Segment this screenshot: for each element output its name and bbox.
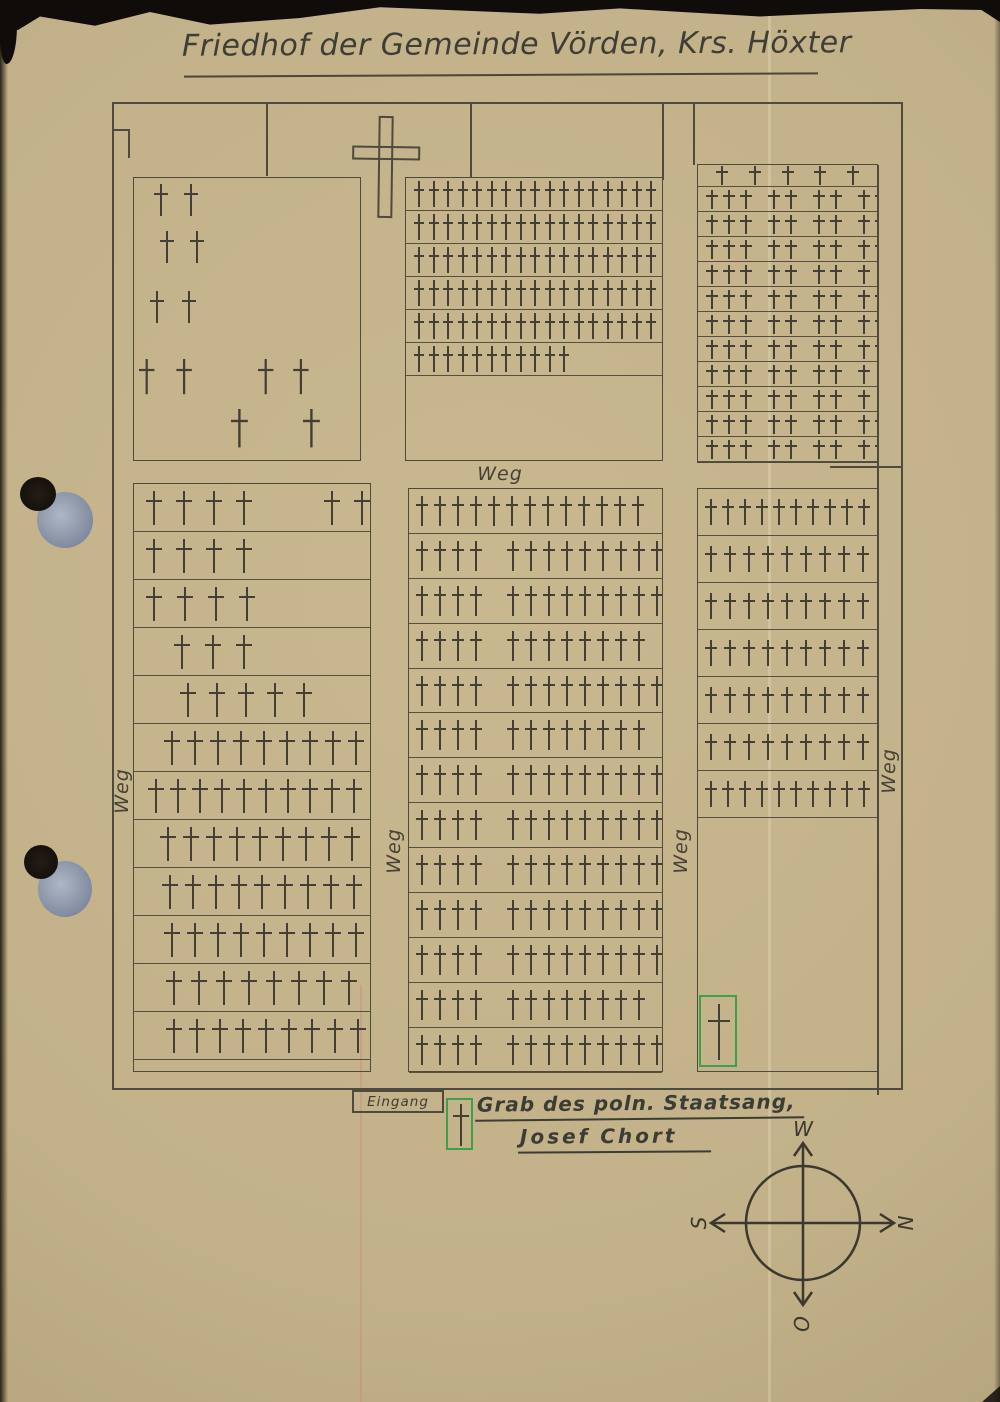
grave-field-northeast: [697, 164, 878, 463]
grave-cross-icon: [813, 215, 825, 234]
grave-cross-icon: [346, 875, 362, 909]
grave-field-north-middle: [405, 177, 663, 461]
right-path-cross-line: [830, 466, 903, 468]
grave-cross-icon: [814, 166, 826, 185]
grave-cross-icon: [561, 676, 573, 706]
grave-row: [698, 187, 877, 212]
grave-cross-icon: [146, 587, 162, 621]
grave-cross-icon: [434, 1035, 446, 1065]
grave-cross-icon: [740, 315, 752, 334]
grave-row: [134, 724, 370, 772]
grave-cross-icon: [633, 900, 645, 930]
grave-cross-icon: [615, 631, 627, 661]
grave-cross-icon: [470, 586, 482, 616]
grave-cross-icon: [724, 687, 736, 713]
grave-cross-icon: [739, 499, 751, 525]
grave-cross-icon: [813, 315, 825, 334]
grave-cross-icon: [296, 683, 312, 717]
grave-row: [698, 287, 877, 312]
grave-cross-icon: [501, 280, 511, 306]
grave-cross-icon: [507, 990, 519, 1020]
top-strip-divider-1: [266, 102, 268, 176]
grave-cross-icon: [830, 290, 842, 309]
grave-cross-icon: [487, 313, 497, 339]
grave-cross-icon: [651, 765, 662, 795]
grave-cross-icon: [561, 586, 573, 616]
grave-cross-icon: [166, 1019, 182, 1053]
grave-row: [409, 758, 662, 803]
grave-row: [698, 237, 877, 262]
grave-cross-icon: [782, 166, 794, 185]
grave-cross-icon: [858, 240, 870, 259]
grave-cross-icon: [768, 215, 780, 234]
grave-row: [134, 1012, 370, 1060]
grave-field-south-middle: [408, 488, 663, 1072]
grave-cross-icon: [506, 496, 518, 526]
grave-cross-icon: [768, 340, 780, 359]
grave-cross-icon: [574, 247, 584, 273]
grave-cross-icon: [530, 181, 540, 207]
grave-cross-icon: [724, 546, 736, 572]
grave-cross-icon: [651, 810, 662, 840]
grave-cross-icon: [785, 290, 797, 309]
grave-cross-icon: [300, 875, 316, 909]
grave-cross-icon: [316, 971, 332, 1005]
grave-cross-icon: [768, 415, 780, 434]
grave-cross-icon: [545, 313, 555, 339]
grave-cross-icon: [800, 640, 812, 666]
grave-cross-icon: [233, 731, 249, 765]
grave-cross-icon: [830, 215, 842, 234]
grave-cross-icon: [277, 875, 293, 909]
grave-note-line2: Josef Chort: [518, 1123, 712, 1153]
grave-cross-icon: [516, 313, 526, 339]
grave-cross-icon: [830, 265, 842, 284]
grave-cross-icon: [543, 810, 555, 840]
grave-row: [409, 893, 662, 938]
grave-cross-icon: [597, 945, 609, 975]
grave-cross-icon: [176, 491, 192, 525]
grave-cross-icon: [452, 586, 464, 616]
grave-cross-icon: [838, 593, 850, 619]
grave-cross-icon: [212, 1019, 228, 1053]
grave-cross-icon: [414, 346, 424, 372]
grave-cross-icon: [633, 720, 645, 750]
grave-cross-icon: [429, 280, 439, 306]
grave-cross-icon: [813, 440, 825, 459]
grave-cross-icon: [525, 541, 537, 571]
grave-cross-icon: [525, 900, 537, 930]
grave-cross-icon: [875, 415, 877, 434]
grave-cross-icon: [614, 496, 626, 526]
grave-cross-icon: [579, 810, 591, 840]
grave-cross-icon: [266, 971, 282, 1005]
grave-cross-icon: [824, 499, 836, 525]
grave-cross-icon: [434, 990, 446, 1020]
grave-cross-icon: [191, 971, 207, 1005]
grave-cross-icon: [559, 313, 569, 339]
grave-cross-icon: [507, 541, 519, 571]
grave-row: [698, 536, 877, 583]
grave-cross-icon: [160, 231, 174, 263]
grave-cross-icon: [561, 541, 573, 571]
top-strip-divider-4: [693, 102, 695, 165]
grave-cross-icon: [756, 499, 768, 525]
grave-cross-icon: [633, 631, 645, 661]
grave-cross-icon: [452, 631, 464, 661]
grave-cross-icon: [773, 499, 785, 525]
grave-cross-icon: [458, 280, 468, 306]
grave-row: [409, 938, 662, 983]
grave-cross-icon: [723, 190, 735, 209]
grave-cross-icon: [781, 640, 793, 666]
grave-cross-icon: [298, 827, 314, 861]
grave-cross-icon: [743, 593, 755, 619]
grave-group: [258, 359, 309, 394]
grave-cross-icon: [341, 971, 357, 1005]
grave-row: [406, 343, 662, 376]
grave-cross-icon: [785, 415, 797, 434]
grave-cross-icon: [588, 214, 598, 240]
grave-cross-icon: [525, 1035, 537, 1065]
grave-row: [409, 803, 662, 848]
grave-cross-icon: [633, 765, 645, 795]
compass-label-north: N: [893, 1216, 913, 1231]
grave-row: [134, 916, 370, 964]
grave-cross-icon: [525, 945, 537, 975]
grave-row: [134, 964, 370, 1012]
grave-cross-icon: [813, 265, 825, 284]
grave-cross-icon: [525, 810, 537, 840]
grave-cross-icon: [235, 1019, 251, 1053]
grave-cross-icon: [323, 875, 339, 909]
grave-cross-icon: [452, 676, 464, 706]
grave-cross-icon: [470, 900, 482, 930]
grave-row: [698, 489, 877, 536]
grave-cross-icon: [800, 546, 812, 572]
grave-cross-icon: [414, 280, 424, 306]
grave-cross-icon: [838, 546, 850, 572]
grave-cross-icon: [470, 541, 482, 571]
grave-cross-icon: [705, 640, 717, 666]
grave-cross-icon: [632, 214, 642, 240]
grave-cross-icon: [162, 875, 178, 909]
grave-cross-icon: [724, 640, 736, 666]
grave-cross-icon: [858, 499, 870, 525]
hole-punch-bottom: [24, 845, 58, 879]
grave-cross-icon: [416, 990, 428, 1020]
grave-cross-icon: [723, 265, 735, 284]
grave-cross-icon: [597, 586, 609, 616]
grave-row: [134, 676, 370, 724]
grave-cross-icon: [208, 875, 224, 909]
grave-cross-icon: [762, 687, 774, 713]
grave-cross-icon: [768, 440, 780, 459]
compass-rose: W N S O: [688, 1118, 913, 1338]
grave-cross-icon: [487, 346, 497, 372]
grave-cross-icon: [705, 499, 717, 525]
grave-cross-icon: [280, 779, 296, 813]
top-strip-divider-2: [470, 102, 472, 178]
grave-cross-icon: [516, 346, 526, 372]
grave-row: [409, 624, 662, 669]
grave-cross-icon: [236, 779, 252, 813]
grave-cross-icon: [785, 240, 797, 259]
grave-cross-icon: [434, 586, 446, 616]
grave-cross-icon: [429, 313, 439, 339]
grave-cross-icon: [651, 900, 662, 930]
grave-cross-icon: [458, 181, 468, 207]
grave-cross-icon: [813, 190, 825, 209]
grave-cross-icon: [443, 313, 453, 339]
scanned-page: Friedhof der Gemeinde Vörden, Krs. Höxte…: [0, 0, 1000, 1402]
grave-cross-icon: [706, 190, 718, 209]
grave-cross-icon: [416, 1035, 428, 1065]
grave-cross-icon: [458, 247, 468, 273]
grave-cross-icon: [597, 990, 609, 1020]
grave-row: [698, 312, 877, 337]
grave-cross-icon: [501, 214, 511, 240]
grave-cross-icon: [615, 810, 627, 840]
grave-cross-icon: [543, 990, 555, 1020]
grave-cross-icon: [724, 593, 736, 619]
grave-cross-icon: [452, 496, 464, 526]
grave-row: [698, 212, 877, 237]
grave-cross-icon: [267, 683, 283, 717]
grave-cross-icon: [651, 541, 662, 571]
grave-cross-icon: [429, 181, 439, 207]
grave-cross-icon: [632, 313, 642, 339]
grave-cross-icon: [633, 676, 645, 706]
marked-grave-cross-icon: [708, 1004, 730, 1060]
grave-cross-icon: [838, 687, 850, 713]
grave-cross-icon: [724, 734, 736, 760]
grave-cross-icon: [785, 190, 797, 209]
grave-cross-icon: [603, 280, 613, 306]
grave-cross-icon: [597, 1035, 609, 1065]
grave-field-southwest: [133, 483, 371, 1072]
grave-cross-icon: [470, 990, 482, 1020]
grave-cross-icon: [561, 855, 573, 885]
grave-cross-icon: [304, 1019, 320, 1053]
grave-row: [698, 165, 877, 187]
grave-cross-icon: [875, 340, 877, 359]
grave-cross-icon: [875, 190, 877, 209]
grave-cross-icon: [516, 280, 526, 306]
grave-cross-icon: [414, 181, 424, 207]
grave-cross-icon: [651, 676, 662, 706]
grave-cross-icon: [739, 781, 751, 807]
grave-cross-icon: [205, 635, 221, 669]
grave-cross-icon: [838, 640, 850, 666]
grave-cross-icon: [615, 855, 627, 885]
grave-cross-icon: [214, 779, 230, 813]
grave-cross-icon: [785, 265, 797, 284]
grave-cross-icon: [507, 586, 519, 616]
grave-cross-icon: [559, 181, 569, 207]
grave-cross-icon: [597, 720, 609, 750]
grave-cross-icon: [414, 313, 424, 339]
grave-cross-icon: [781, 734, 793, 760]
grave-cross-icon: [470, 720, 482, 750]
grave-cross-icon: [785, 315, 797, 334]
grave-cross-icon: [559, 247, 569, 273]
grave-cross-icon: [596, 496, 608, 526]
grave-cross-icon: [579, 631, 591, 661]
grave-cross-icon: [350, 1019, 366, 1053]
grave-cross-icon: [768, 290, 780, 309]
grave-cross-icon: [507, 810, 519, 840]
grave-cross-icon: [749, 166, 761, 185]
grave-group: [139, 359, 192, 394]
grave-row: [409, 1028, 662, 1073]
grave-cross-icon: [187, 923, 203, 957]
grave-group: [154, 184, 198, 216]
grave-cross-icon: [543, 900, 555, 930]
grave-row: [406, 211, 662, 244]
grave-cross-icon: [189, 1019, 205, 1053]
grave-cross-icon: [545, 181, 555, 207]
entrance-box: Eingang: [352, 1090, 444, 1113]
grave-cross-icon: [434, 810, 446, 840]
compass-label-east: O: [790, 1316, 814, 1332]
grave-cross-icon: [416, 765, 428, 795]
grave-cross-icon: [858, 365, 870, 384]
grave-cross-icon: [416, 631, 428, 661]
grave-cross-icon: [646, 181, 656, 207]
grave-cross-icon: [723, 240, 735, 259]
grave-cross-icon: [790, 499, 802, 525]
grave-cross-icon: [824, 781, 836, 807]
grave-cross-icon: [705, 734, 717, 760]
grave-cross-icon: [416, 496, 428, 526]
grave-cross-icon: [819, 687, 831, 713]
grave-cross-icon: [291, 971, 307, 1005]
grave-cross-icon: [545, 247, 555, 273]
grave-cross-icon: [507, 1035, 519, 1065]
grave-cross-icon: [579, 720, 591, 750]
grave-cross-icon: [543, 676, 555, 706]
grave-cross-icon: [542, 496, 554, 526]
grave-cross-icon: [858, 390, 870, 409]
grave-cross-icon: [516, 247, 526, 273]
grave-cross-icon: [416, 900, 428, 930]
grave-cross-icon: [434, 631, 446, 661]
grave-cross-icon: [579, 855, 591, 885]
grave-cross-icon: [706, 315, 718, 334]
grave-cross-icon: [579, 676, 591, 706]
grave-cross-icon: [813, 415, 825, 434]
grave-cross-icon: [525, 586, 537, 616]
grave-cross-icon: [857, 593, 869, 619]
grave-cross-icon: [615, 720, 627, 750]
weg-label-middle: Weg: [382, 821, 406, 881]
grave-cross-icon: [182, 291, 196, 323]
grave-cross-icon: [452, 720, 464, 750]
grave-cross-icon: [452, 900, 464, 930]
grave-cross-icon: [429, 346, 439, 372]
grave-cross-icon: [209, 683, 225, 717]
grave-cross-icon: [434, 676, 446, 706]
grave-cross-icon: [164, 923, 180, 957]
grave-cross-icon: [302, 779, 318, 813]
grave-cross-icon: [414, 247, 424, 273]
grave-row: [698, 771, 877, 818]
grave-cross-icon: [470, 855, 482, 885]
grave-cross-icon: [705, 781, 717, 807]
grave-cross-icon: [302, 923, 318, 957]
grave-cross-icon: [723, 215, 735, 234]
grave-cross-icon: [487, 280, 497, 306]
grave-cross-icon: [210, 731, 226, 765]
grave-cross-icon: [743, 687, 755, 713]
grave-cross-icon: [740, 415, 752, 434]
grave-row: [409, 489, 662, 534]
weg-label-top: Weg: [455, 461, 545, 487]
grave-cross-icon: [830, 415, 842, 434]
grave-cross-icon: [857, 546, 869, 572]
grave-cross-icon: [525, 720, 537, 750]
grave-row: [134, 484, 370, 532]
grave-cross-icon: [525, 855, 537, 885]
grave-row: [409, 579, 662, 624]
grave-cross-icon: [275, 827, 291, 861]
grave-cross-icon: [706, 240, 718, 259]
grave-cross-icon: [858, 415, 870, 434]
grave-cross-icon: [443, 247, 453, 273]
grave-cross-icon: [813, 290, 825, 309]
grave-row: [698, 337, 877, 362]
grave-cross-icon: [458, 214, 468, 240]
compass-label-south: S: [688, 1216, 711, 1229]
grave-cross-icon: [597, 765, 609, 795]
grave-cross-icon: [452, 541, 464, 571]
grave-cross-icon: [706, 390, 718, 409]
grave-cross-icon: [858, 781, 870, 807]
grave-cross-icon: [858, 215, 870, 234]
grave-row: [134, 820, 370, 868]
grave-cross-icon: [416, 541, 428, 571]
grave-cross-icon: [633, 990, 645, 1020]
grave-cross-icon: [858, 440, 870, 459]
grave-row: [698, 387, 877, 412]
grave-cross-icon: [716, 166, 728, 185]
grave-cross-icon: [177, 587, 193, 621]
grave-cross-icon: [325, 731, 341, 765]
grave-cross-icon: [190, 231, 204, 263]
grave-cross-icon: [487, 181, 497, 207]
grave-cross-icon: [525, 631, 537, 661]
grave-cross-icon: [321, 827, 337, 861]
grave-cross-icon: [781, 593, 793, 619]
grave-cross-icon: [543, 720, 555, 750]
grave-cross-icon: [429, 214, 439, 240]
grave-cross-icon: [768, 365, 780, 384]
grave-cross-icon: [164, 731, 180, 765]
grave-cross-icon: [588, 313, 598, 339]
grave-row: [406, 244, 662, 277]
grave-cross-icon: [183, 827, 199, 861]
grave-cross-icon: [327, 1019, 343, 1053]
grave-cross-icon: [170, 779, 186, 813]
grave-cross-icon: [723, 290, 735, 309]
grave-cross-icon: [615, 990, 627, 1020]
grave-cross-icon: [559, 214, 569, 240]
grave-cross-icon: [875, 440, 877, 459]
grave-cross-icon: [706, 215, 718, 234]
grave-cross-icon: [723, 440, 735, 459]
grave-cross-icon: [236, 491, 252, 525]
